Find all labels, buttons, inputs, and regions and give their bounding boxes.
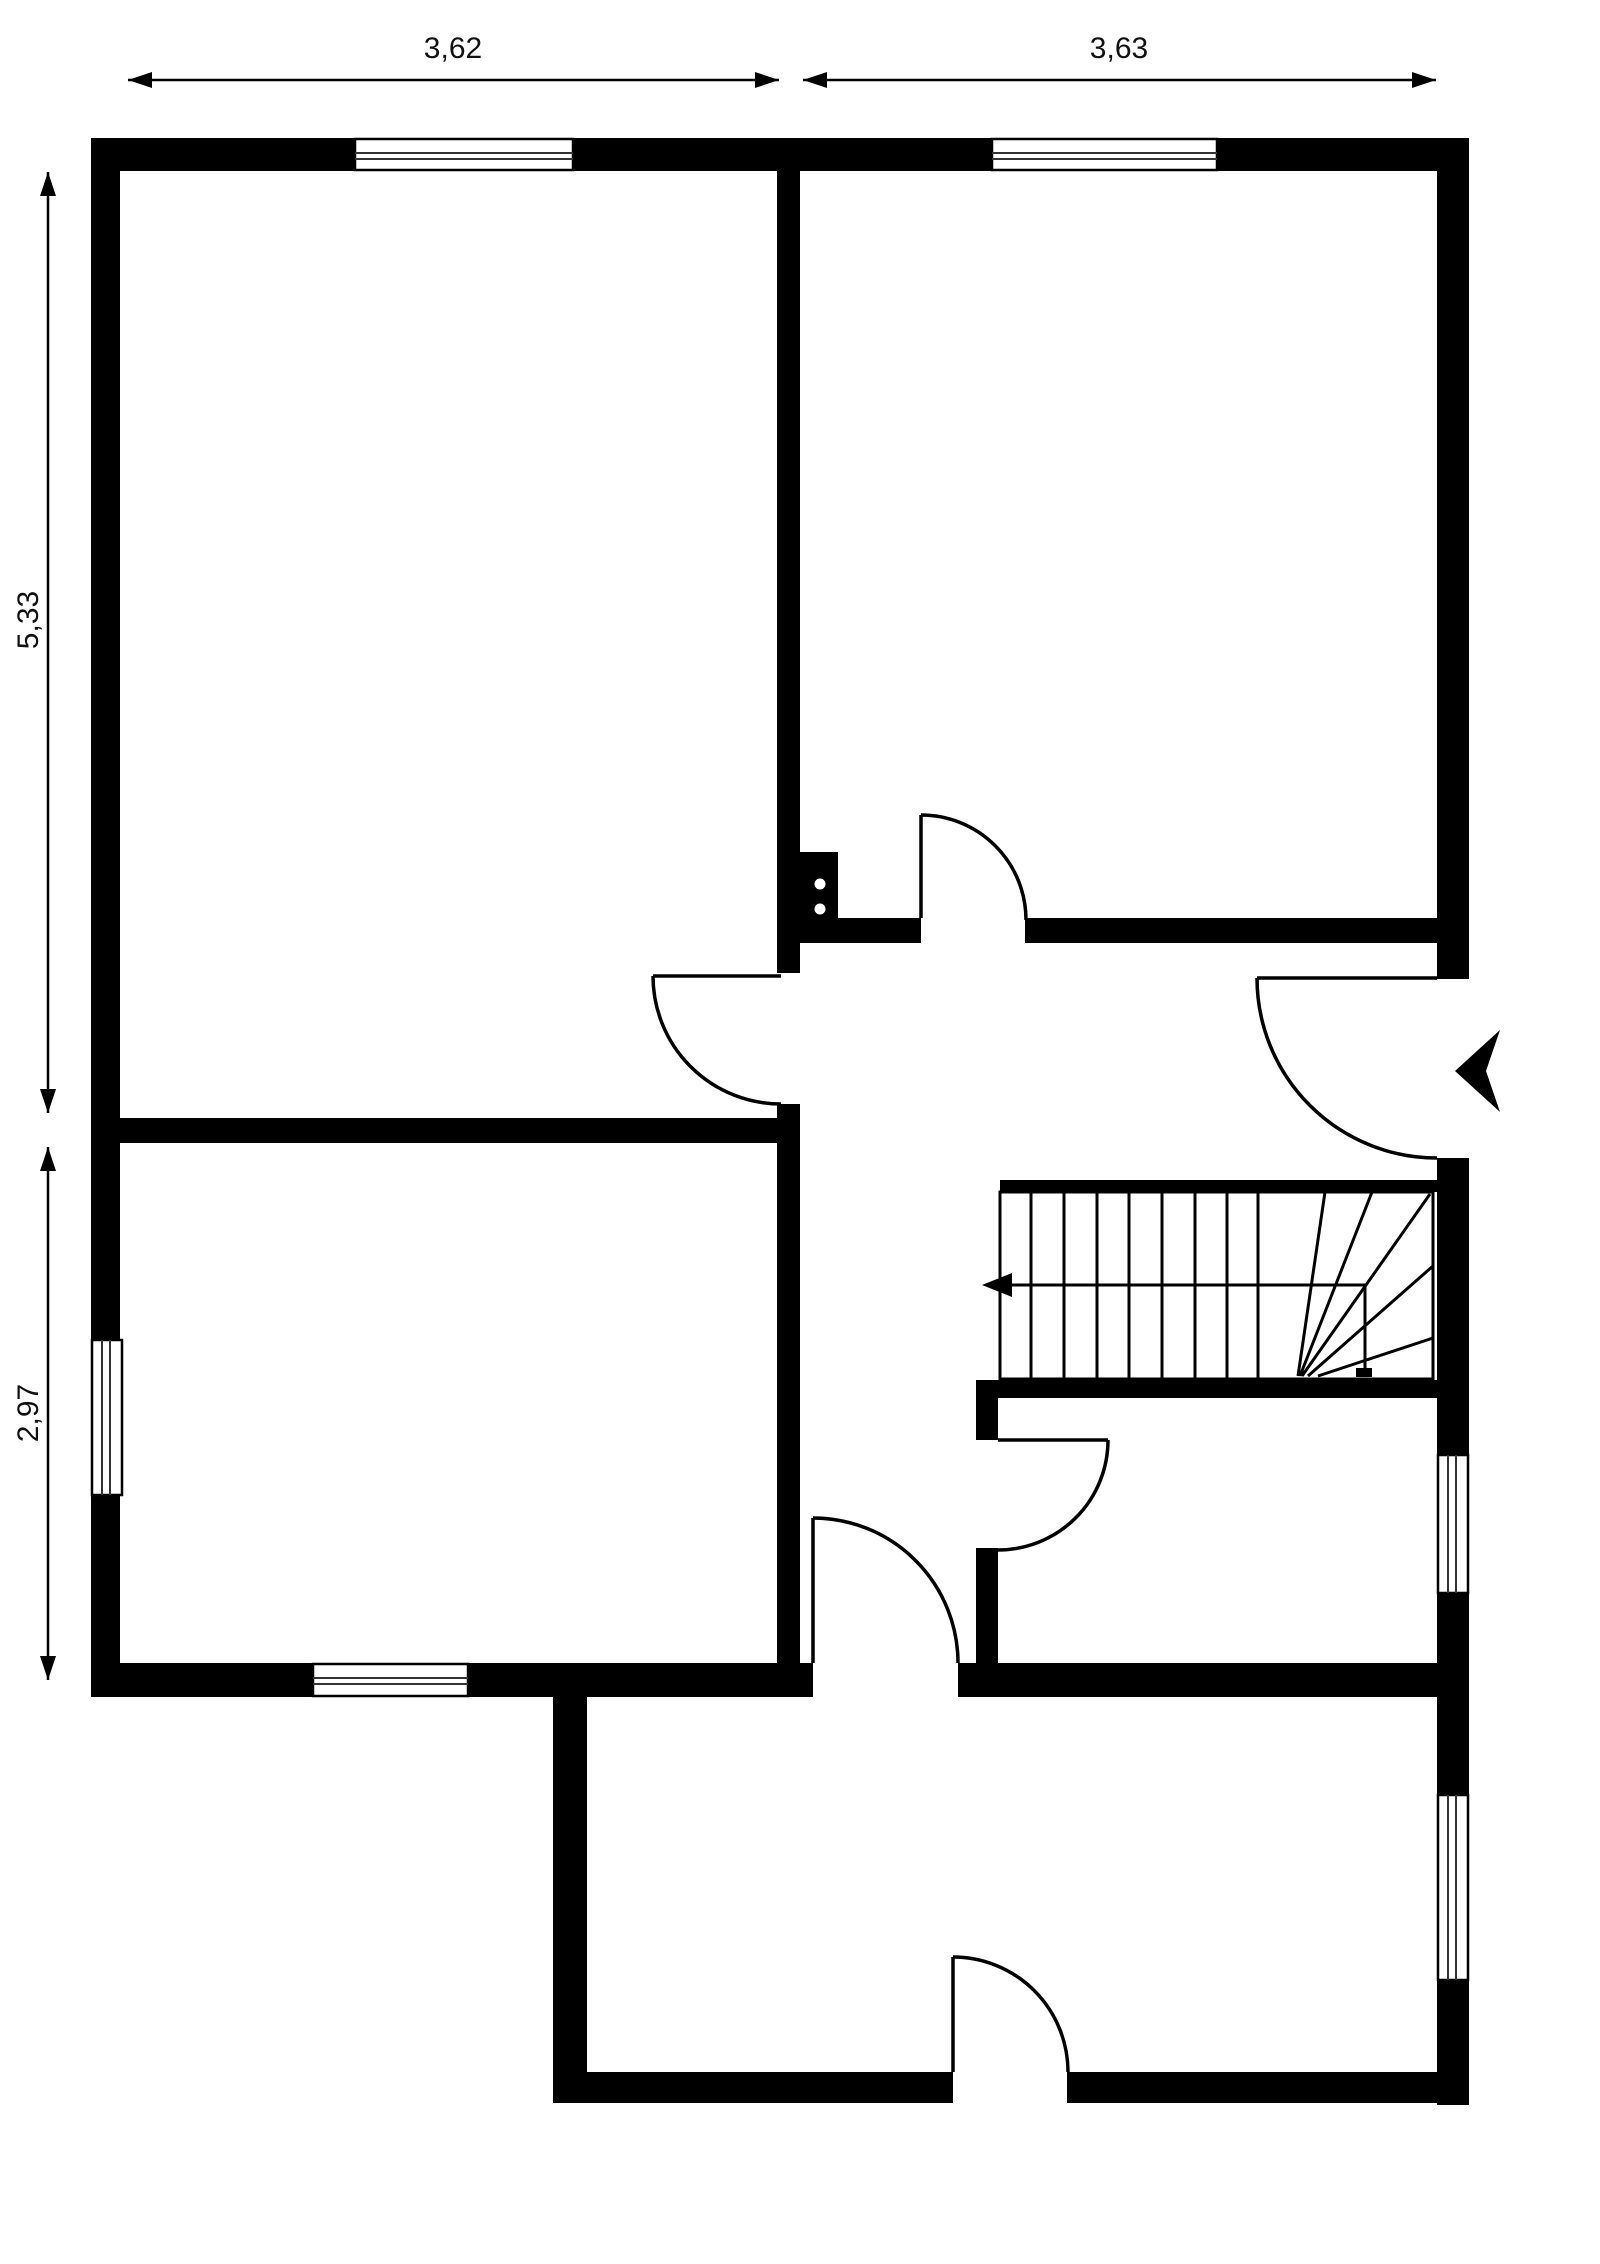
right-wall-upper (1437, 171, 1469, 979)
window-right-wall-bottom-room (1438, 1795, 1468, 1980)
main-vertical-wall-lower (777, 1104, 800, 1697)
wc-stub-wall-upper (976, 1397, 998, 1440)
door-bottom-exterior (953, 1957, 1068, 2072)
hallway-bottom-wall (958, 1663, 1437, 1697)
dim-left-lower: 2,97 (12, 1147, 56, 1680)
extension-bottom-wall-left (553, 2072, 953, 2103)
dim-top-left: 3,62 (128, 32, 779, 88)
dimension-annotations: 3,62 3,63 5,33 2,97 (12, 32, 1436, 1680)
extension-bottom-wall-right (1067, 2072, 1469, 2103)
window-bottom-left-room (313, 1664, 468, 1696)
wc-stub-wall-lower (976, 1548, 998, 1663)
flue-hole-2 (815, 904, 826, 915)
stair-direction-arrow (982, 1273, 1012, 1297)
window-top-left-room (355, 139, 573, 170)
dim-label-left-lower: 2,97 (12, 1384, 45, 1442)
door-top-left-room (653, 976, 781, 1104)
stair-bottom-wall (976, 1380, 1437, 1398)
door-entry (1257, 978, 1437, 1158)
corridor-wall-right (1025, 918, 1437, 943)
staircase (982, 1192, 1433, 1379)
room-divider-wall (120, 1118, 777, 1143)
entry-arrow-icon (1455, 1030, 1500, 1112)
dim-label-top-right: 3,63 (1090, 32, 1148, 65)
door-top-right-room (921, 815, 1026, 920)
door-landing-to-bottom-room (813, 1518, 958, 1663)
top-wall (91, 138, 1469, 171)
window-right-wall-hall (1438, 1455, 1468, 1593)
interior-walls (120, 171, 1437, 1697)
dim-label-left-upper: 5,33 (12, 591, 45, 649)
window-top-right-room (992, 139, 1217, 170)
doors (653, 815, 1437, 2072)
window-left-wall (92, 1340, 122, 1495)
dim-label-top-left: 3,62 (424, 32, 482, 65)
stair-walkline-start-tick (1356, 1368, 1372, 1377)
door-wc (998, 1440, 1108, 1550)
dim-left-upper: 5,33 (12, 172, 56, 1113)
extension-left-wall (553, 1663, 587, 2103)
chimney-block (800, 852, 838, 925)
main-vertical-wall-upper (777, 171, 800, 973)
dim-top-right: 3,63 (803, 32, 1436, 88)
floor-plan-canvas: 3,62 3,63 5,33 2,97 (0, 0, 1600, 2264)
floor-plan-drawing: 3,62 3,63 5,33 2,97 (0, 0, 1600, 2264)
flue-hole-1 (815, 879, 826, 890)
stair-top-wall (1000, 1180, 1437, 1192)
